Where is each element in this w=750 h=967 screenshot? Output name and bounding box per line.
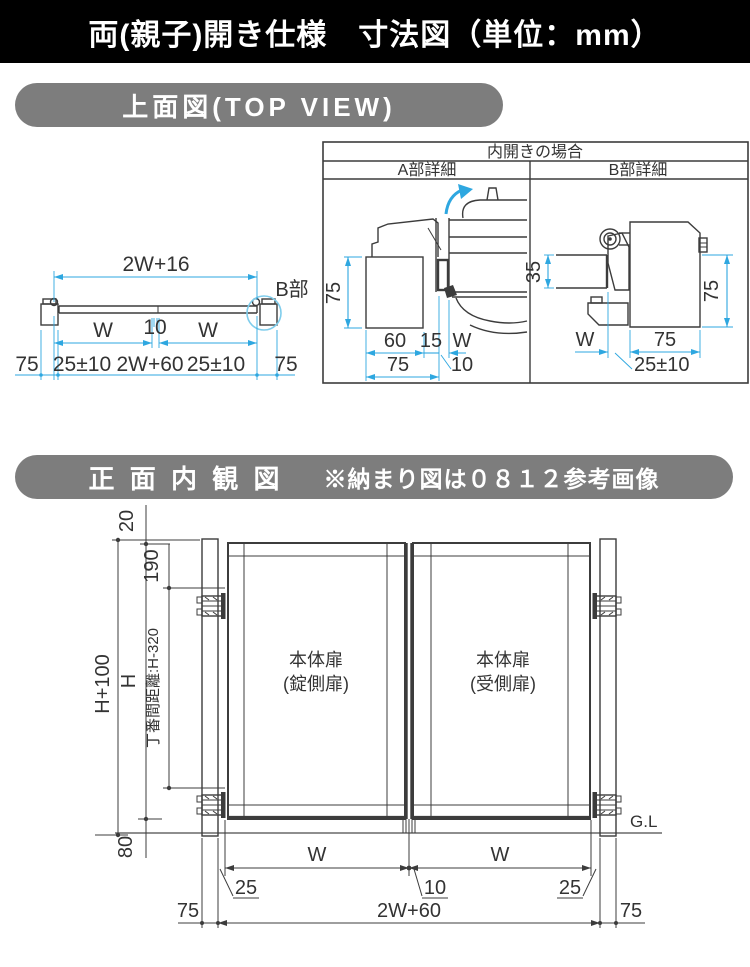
door-right-sublabel: (受側扉) bbox=[470, 674, 536, 694]
dim-post-left: 75 bbox=[15, 353, 38, 376]
door-left-label: 本体扉 bbox=[289, 650, 343, 670]
detail-b-heading: B部詳細 bbox=[609, 161, 668, 179]
dim-gap-left: 25 bbox=[235, 877, 257, 899]
dim-b-clearance: 25±10 bbox=[634, 354, 689, 376]
top-view-drawing: 2W+16 B部 W 10 W 75 25±10 2W+60 25±10 75 … bbox=[0, 135, 750, 445]
detail-a-heading: A部詳細 bbox=[398, 161, 457, 179]
dim-a-w: W bbox=[453, 330, 472, 352]
front-view-note: ※納まり図は０８１２参考画像 bbox=[323, 460, 659, 494]
dim-hinge-distance: 丁番間距離:H-320 bbox=[144, 628, 162, 748]
dim-a-10: 10 bbox=[451, 354, 473, 376]
dim-b-w: W bbox=[576, 329, 595, 351]
dim-w-right: W bbox=[491, 844, 510, 866]
b-section-label: B部 bbox=[275, 278, 308, 301]
dim-span-width: 2W+60 bbox=[377, 900, 441, 922]
dim-w-left: W bbox=[308, 844, 327, 866]
front-view-heading: 正 面 内 観 図 bbox=[89, 459, 284, 496]
dim-a-75: 75 bbox=[387, 354, 409, 376]
dim-clearance-right: 25±10 bbox=[187, 353, 245, 376]
dim-total-height: H+100 bbox=[92, 654, 114, 714]
page-title-bar: 両(親子)開き仕様 寸法図（単位：mm） bbox=[0, 0, 750, 63]
ground-label: G.L bbox=[630, 812, 657, 831]
dim-center-gap: 10 bbox=[143, 316, 166, 339]
dim-leaf-left: W bbox=[93, 319, 113, 342]
dim-span: 2W+60 bbox=[116, 353, 183, 376]
dim-post-left-width: 75 bbox=[177, 900, 199, 922]
dim-b-height: 75 bbox=[701, 280, 723, 302]
dim-gap-right: 25 bbox=[559, 877, 581, 899]
door-right-label: 本体扉 bbox=[476, 650, 530, 670]
dim-hinge-top-offset: 190 bbox=[141, 549, 163, 582]
page-title: 両(親子)開き仕様 寸法図（単位：mm） bbox=[88, 10, 661, 54]
dim-overall-width: 2W+16 bbox=[122, 253, 189, 276]
dim-post-right-width: 75 bbox=[620, 900, 642, 922]
section-header-front-view: 正 面 内 観 図 ※納まり図は０８１２参考画像 bbox=[15, 455, 733, 499]
dim-leaf-right: W bbox=[198, 319, 218, 342]
section-header-top-view: 上面図(TOP VIEW) bbox=[15, 83, 503, 127]
dim-b-75: 75 bbox=[654, 329, 676, 351]
dim-top-offset: 20 bbox=[116, 510, 138, 532]
front-view-drawing: G.L bbox=[0, 498, 750, 967]
door-left-sublabel: (錠側扉) bbox=[283, 674, 349, 694]
spec-drawing-page: 両(親子)開き仕様 寸法図（単位：mm） 上面図(TOP VIEW) bbox=[0, 0, 750, 967]
dim-a-60: 60 bbox=[384, 330, 406, 352]
dim-door-height: H bbox=[118, 674, 140, 688]
detail-panel-title: 内開きの場合 bbox=[487, 143, 583, 161]
dim-gap-center: 10 bbox=[424, 877, 446, 899]
top-view-heading: 上面図(TOP VIEW) bbox=[122, 87, 396, 124]
dim-bottom-clearance: 80 bbox=[115, 836, 137, 858]
dim-b-35: 35 bbox=[523, 261, 545, 283]
dim-a-height: 75 bbox=[323, 282, 345, 304]
dim-a-15: 15 bbox=[420, 330, 442, 352]
dim-post-right: 75 bbox=[274, 353, 297, 376]
dim-clearance-left: 25±10 bbox=[53, 353, 111, 376]
